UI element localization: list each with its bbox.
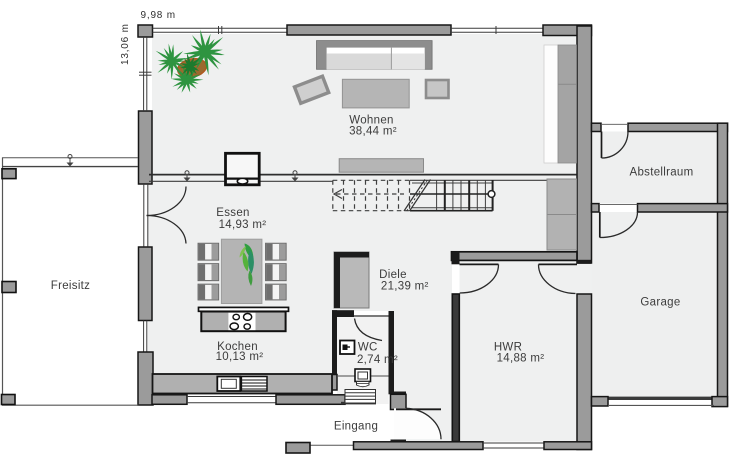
svg-text:10,13 m²: 10,13 m² [216,351,264,363]
svg-text:2,74 m²: 2,74 m² [357,354,398,366]
svg-text:WC: WC [358,342,378,354]
svg-text:Eingang: Eingang [334,420,378,432]
svg-text:Essen: Essen [216,207,249,219]
svg-text:13,06 m: 13,06 m [120,23,131,65]
svg-text:Diele: Diele [379,269,407,281]
svg-text:14,93 m²: 14,93 m² [219,219,267,231]
svg-text:Freisitz: Freisitz [51,280,90,292]
svg-text:21,39 m²: 21,39 m² [381,280,429,292]
svg-text:38,44 m²: 38,44 m² [349,126,397,138]
svg-text:9,98 m: 9,98 m [141,10,176,21]
svg-text:Garage: Garage [640,296,680,308]
svg-text:14,88 m²: 14,88 m² [497,353,545,365]
svg-text:Abstellraum: Abstellraum [629,166,693,178]
